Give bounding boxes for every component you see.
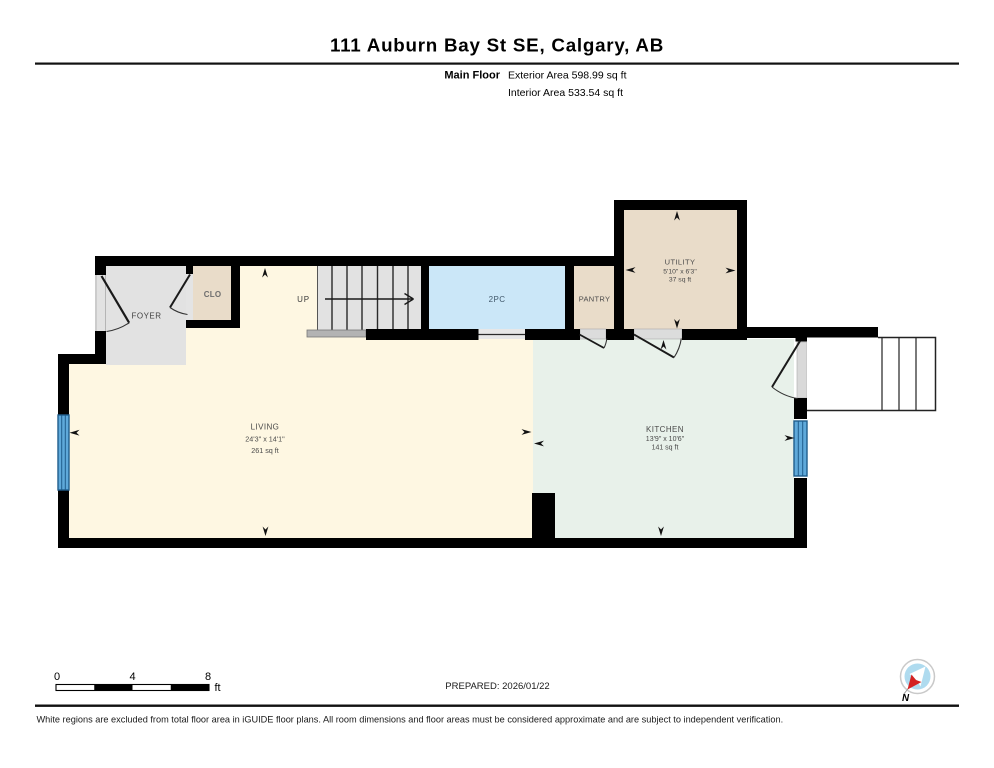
svg-text:5'10" x 6'3": 5'10" x 6'3" bbox=[663, 269, 697, 276]
svg-text:UTILITY: UTILITY bbox=[665, 258, 696, 267]
svg-text:CLO: CLO bbox=[204, 290, 222, 299]
svg-text:261 sq ft: 261 sq ft bbox=[251, 446, 279, 455]
svg-text:13'9" x 10'6": 13'9" x 10'6" bbox=[646, 436, 685, 443]
svg-text:0: 0 bbox=[54, 671, 60, 683]
svg-text:8: 8 bbox=[205, 671, 211, 683]
svg-text:White regions are excluded fro: White regions are excluded from total fl… bbox=[37, 715, 784, 725]
svg-text:4: 4 bbox=[129, 671, 135, 683]
svg-text:LIVING: LIVING bbox=[251, 423, 280, 432]
svg-text:2PC: 2PC bbox=[489, 295, 506, 304]
svg-text:N: N bbox=[902, 693, 910, 704]
svg-text:PANTRY: PANTRY bbox=[579, 295, 611, 304]
svg-text:Exterior Area 598.99 sq ft: Exterior Area 598.99 sq ft bbox=[508, 70, 627, 82]
svg-text:141 sq ft: 141 sq ft bbox=[652, 445, 679, 452]
svg-text:ft: ft bbox=[215, 682, 221, 694]
svg-text:111 Auburn Bay St SE, Calgary,: 111 Auburn Bay St SE, Calgary, AB bbox=[330, 35, 664, 56]
svg-text:24'3" x 14'1": 24'3" x 14'1" bbox=[245, 435, 285, 444]
svg-text:UP: UP bbox=[297, 295, 310, 304]
svg-text:37 sq ft: 37 sq ft bbox=[669, 277, 691, 284]
svg-text:PREPARED: 2026/01/22: PREPARED: 2026/01/22 bbox=[445, 681, 549, 692]
svg-text:KITCHEN: KITCHEN bbox=[646, 425, 684, 434]
svg-text:Interior Area 533.54 sq ft: Interior Area 533.54 sq ft bbox=[508, 87, 623, 99]
svg-text:Main Floor: Main Floor bbox=[444, 70, 500, 82]
svg-text:FOYER: FOYER bbox=[131, 312, 161, 321]
